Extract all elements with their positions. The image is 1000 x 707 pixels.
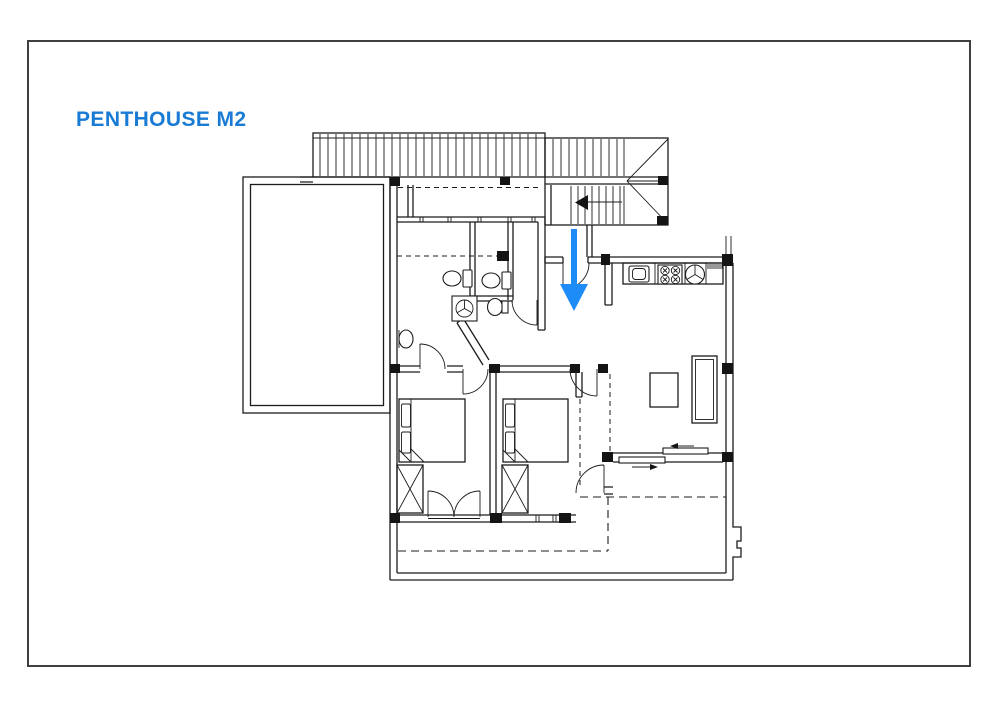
washbasin bbox=[399, 330, 413, 348]
stair-direction-arrow bbox=[575, 195, 588, 210]
pergola-slats bbox=[300, 133, 545, 182]
roof-overhang-dashed bbox=[397, 188, 726, 552]
table bbox=[650, 373, 678, 407]
bathroom-fixtures bbox=[399, 270, 511, 348]
round-hob-icon bbox=[686, 265, 705, 284]
shower-tray bbox=[452, 296, 477, 321]
counter-hatch bbox=[708, 264, 722, 269]
bedroom-2-furniture bbox=[502, 399, 568, 513]
staircase bbox=[545, 138, 668, 225]
bedroom-1-furniture bbox=[397, 399, 465, 513]
toilet bbox=[482, 272, 511, 289]
washbasin bbox=[488, 299, 509, 316]
entrance-arrow bbox=[560, 229, 588, 311]
sliding-door bbox=[613, 443, 723, 470]
sofa bbox=[692, 356, 717, 423]
wardrobe bbox=[502, 465, 528, 513]
terrace bbox=[243, 177, 390, 413]
floor-plan bbox=[0, 0, 1000, 707]
stove-burners bbox=[658, 265, 682, 284]
living-room-furniture bbox=[650, 356, 717, 423]
wardrobe bbox=[397, 465, 423, 513]
kitchen-counter bbox=[623, 263, 723, 284]
drawing-sheet: { "page": { "title": "PENTHOUSE M2" }, "… bbox=[0, 0, 1000, 707]
columns bbox=[390, 176, 733, 523]
toilet bbox=[443, 270, 472, 287]
